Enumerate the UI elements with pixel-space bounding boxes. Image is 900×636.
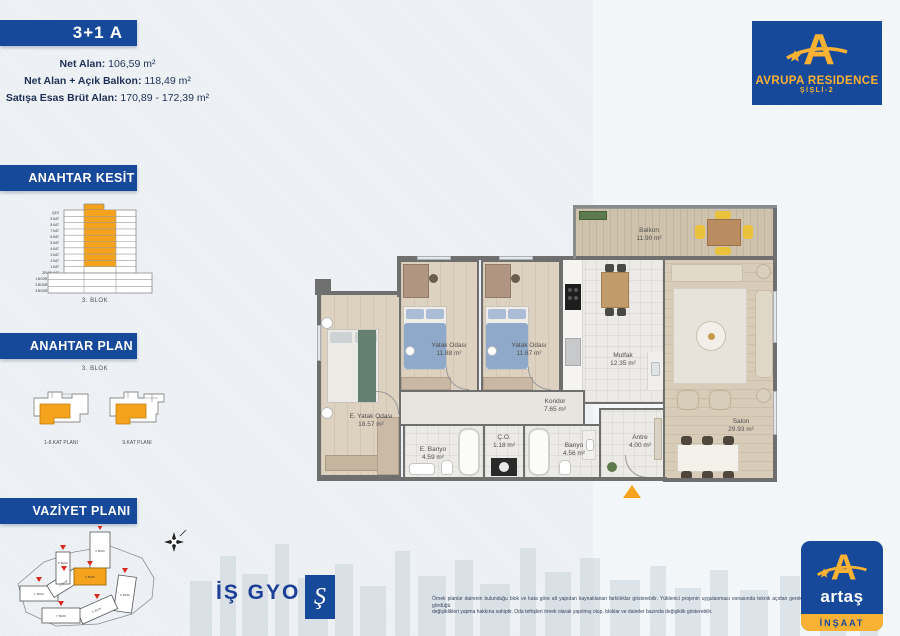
sofa (671, 264, 743, 282)
site-plan: 1. BLOK 2. BLOK 3. BLOK 4. BLOK 5. BLOK … (12, 526, 192, 631)
svg-text:6.KAT: 6.KAT (50, 235, 59, 239)
toilet (559, 460, 571, 475)
isgyo-wordmark: İŞ GYO (216, 581, 300, 605)
armchair (709, 390, 731, 410)
residence-subtitle: ŞİŞLİ-2 (752, 87, 882, 94)
room-label: Balkon11.90 m² (617, 227, 681, 242)
svg-text:4. BLOK: 4. BLOK (95, 549, 105, 553)
door-swing (376, 391, 399, 414)
bed (403, 306, 447, 370)
key-plan-left-label: 1-8.KAT PLANI (24, 440, 98, 446)
desk (485, 264, 511, 298)
artas-a-star-emblem: A (816, 545, 868, 585)
artas-subtitle: İNŞAAT (801, 614, 883, 631)
chair (605, 264, 614, 272)
room-e-yatak-odasi: E. Yatak Odası18.57 m² (319, 293, 401, 477)
floor-plan: Balkon11.90 m² Yatak Odası11.88 m² (315, 195, 785, 495)
entrance-marker (623, 485, 641, 498)
side-table (756, 264, 771, 279)
svg-text:8. BLOK: 8. BLOK (58, 561, 68, 565)
kesit-caption: 3. BLOK (45, 298, 145, 304)
dresser (401, 377, 451, 390)
svg-text:1. BLOK: 1. BLOK (34, 592, 44, 596)
room-antre: Antre4.00 m² (599, 408, 665, 480)
building-section-diagram: ÇATI 9.KAT 8.KAT 7.KAT 6.KAT 5.KAT 4.KAT… (18, 198, 178, 294)
chair (702, 436, 713, 445)
svg-text:9.KAT: 9.KAT (50, 217, 59, 221)
avrupa-residence-logo: A AVRUPA RESIDENCE ŞİŞLİ-2 (752, 21, 882, 105)
stat-value: 170,89 - 172,39 m² (118, 92, 210, 104)
armchair (677, 390, 699, 410)
section-header-anahtar-plan: ANAHTAR PLAN (0, 333, 137, 359)
stat-net-balkon: Net Alan + Açık Balkon: 118,49 m² (0, 73, 215, 90)
chair (605, 308, 614, 316)
toilet (441, 460, 453, 475)
unit-type-badge: 3+1 A (0, 20, 137, 46)
section-header-vaziyet-plani: VAZİYET PLANI (0, 498, 137, 524)
wall (773, 205, 777, 482)
svg-text:1.KAT: 1.KAT (50, 265, 59, 269)
floor-lamp (487, 346, 497, 356)
column (315, 279, 331, 295)
section-header-anahtar-kesit: ANAHTAR KESİT (0, 165, 137, 191)
desk (403, 264, 429, 298)
pillow (508, 309, 526, 319)
svg-text:8.KAT: 8.KAT (50, 223, 59, 227)
rug (673, 288, 747, 384)
chair (723, 436, 734, 445)
room-label: Mutfak12.35 m² (593, 352, 653, 367)
key-plan-floors-1-8 (28, 384, 94, 434)
stat-label: Net Alan + Açık Balkon: (24, 75, 141, 87)
bench (325, 455, 381, 471)
isbank-logo: Ş (305, 575, 335, 619)
disclaimer-line-2: değişiklikleri yapma hakkına sahiptir. O… (432, 609, 804, 616)
disclaimer-line-1: Örnek planlar dairenin bulunduğu blok ve… (432, 596, 804, 609)
avrupa-a-star-emblem: A (785, 23, 849, 69)
balcony-chair (743, 225, 753, 239)
bed (485, 306, 529, 370)
side-table (756, 388, 771, 403)
wall (663, 478, 777, 482)
artas-insaat-logo: A artaş İNŞAAT (801, 541, 883, 631)
disclaimer-text: Örnek planlar dairenin bulunduğu blok ve… (432, 596, 804, 616)
room-label: E. Banyo4.59 m² (409, 446, 457, 461)
stat-net-alan: Net Alan: 106,59 m² (0, 56, 215, 73)
unit-type-label: 3+1 A (73, 23, 123, 43)
stat-value: 118,49 m² (141, 75, 190, 87)
chair (681, 436, 692, 445)
residence-name: AVRUPA RESIDENCE (752, 75, 882, 87)
stat-label: Satışa Esas Brüt Alan: (6, 92, 118, 104)
room-koridor: Koridor7.65 m² (399, 390, 585, 426)
plant (607, 462, 617, 472)
wall (317, 291, 321, 481)
section-title: ANAHTAR PLAN (30, 339, 133, 353)
window (417, 256, 451, 260)
balcony-rail (573, 205, 576, 259)
balcony-chair (695, 225, 705, 239)
washing-machine (491, 458, 517, 476)
room-e-banyo: E. Banyo4.59 m² (403, 424, 485, 480)
stat-label: Net Alan: (60, 58, 106, 70)
bathtub (458, 428, 480, 476)
room-camasir-odasi: Ç.O.1.18 m² (483, 424, 525, 480)
stat-value: 106,59 m² (105, 58, 155, 70)
nightstand-lamp (321, 317, 333, 329)
master-bed (327, 329, 379, 403)
dining-table (677, 444, 739, 472)
sink (409, 463, 435, 475)
pillow (406, 309, 424, 319)
coffee-table (696, 321, 726, 351)
room-balkon: Balkon11.90 m² (573, 207, 777, 259)
wall (573, 256, 777, 260)
pillow (488, 309, 506, 319)
svg-text:7.KAT: 7.KAT (50, 229, 59, 233)
planter (579, 211, 607, 220)
pillow (426, 309, 444, 319)
desk-chair (429, 274, 438, 283)
area-stats: Net Alan: 106,59 m² Net Alan + Açık Balk… (0, 56, 215, 107)
window (317, 325, 321, 361)
isbank-glyph: Ş (314, 585, 326, 609)
room-label: E. Yatak Odası18.57 m² (345, 413, 397, 428)
chair (617, 308, 626, 316)
stat-brut-alan: Satışa Esas Brüt Alan: 170,89 - 172,39 m… (0, 90, 215, 107)
room-banyo: Banyo4.56 m² (523, 424, 601, 480)
svg-text:6. BLOK: 6. BLOK (120, 593, 130, 597)
svg-text:3.KAT: 3.KAT (50, 253, 59, 257)
svg-text:5.KAT: 5.KAT (50, 241, 59, 245)
dresser (483, 377, 533, 390)
chair (617, 264, 626, 272)
key-plan-right-label: 9.KAT PLANI (102, 440, 172, 446)
room-label: Banyo4.56 m² (551, 442, 597, 457)
floor-lamp (405, 346, 415, 356)
room-label: Yatak Odası11.87 m² (501, 342, 557, 357)
bathtub (528, 428, 550, 476)
section-title: VAZİYET PLANI (32, 504, 130, 518)
kitchen-table (601, 272, 629, 308)
refrigerator (565, 338, 581, 366)
kitchen-counter (563, 260, 583, 402)
pillow (330, 332, 352, 343)
brochure-page: 3+1 A Net Alan: 106,59 m² Net Alan + Açı… (0, 0, 900, 636)
balcony-chair (715, 247, 731, 255)
svg-text:7. BLOK: 7. BLOK (56, 614, 66, 618)
cooktop (565, 284, 581, 310)
svg-text:3. BLOK: 3. BLOK (85, 575, 95, 579)
compass-icon (164, 530, 186, 552)
window (499, 256, 533, 260)
plan-caption: 3. BLOK (45, 366, 145, 372)
artas-name: artaş (801, 587, 883, 607)
section-title: ANAHTAR KESİT (28, 171, 134, 185)
room-label: Koridor7.65 m² (525, 398, 585, 413)
entry-door-swing (625, 455, 648, 478)
balcony-chair (715, 211, 731, 219)
window (773, 391, 777, 435)
balcony-rail (573, 205, 777, 208)
desk-chair (511, 274, 520, 283)
room-label: Ç.O.1.18 m² (487, 434, 521, 449)
nightstand-lamp (321, 407, 333, 419)
room-label: Antre4.00 m² (619, 434, 661, 449)
room-label: Yatak Odası11.88 m² (421, 342, 477, 357)
svg-text:4.KAT: 4.KAT (50, 247, 59, 251)
balcony-table (707, 219, 741, 246)
room-yatak-odasi-1: Yatak Odası11.88 m² (399, 260, 479, 392)
room-label: Salon29.93 m² (709, 418, 773, 433)
svg-text:2.KAT: 2.KAT (50, 259, 59, 263)
svg-text:ÇATI: ÇATI (52, 211, 59, 215)
chaise-sofa (755, 290, 773, 378)
window (773, 291, 777, 343)
svg-text:A: A (803, 25, 835, 69)
room-mutfak: Mutfak12.35 m² (561, 258, 665, 404)
key-plan-floor-9 (104, 384, 170, 434)
bed-runner (358, 330, 376, 402)
room-yatak-odasi-2: Yatak Odası11.87 m² (481, 260, 561, 392)
room-salon: Salon29.93 m² (663, 258, 777, 482)
wall (317, 477, 667, 481)
